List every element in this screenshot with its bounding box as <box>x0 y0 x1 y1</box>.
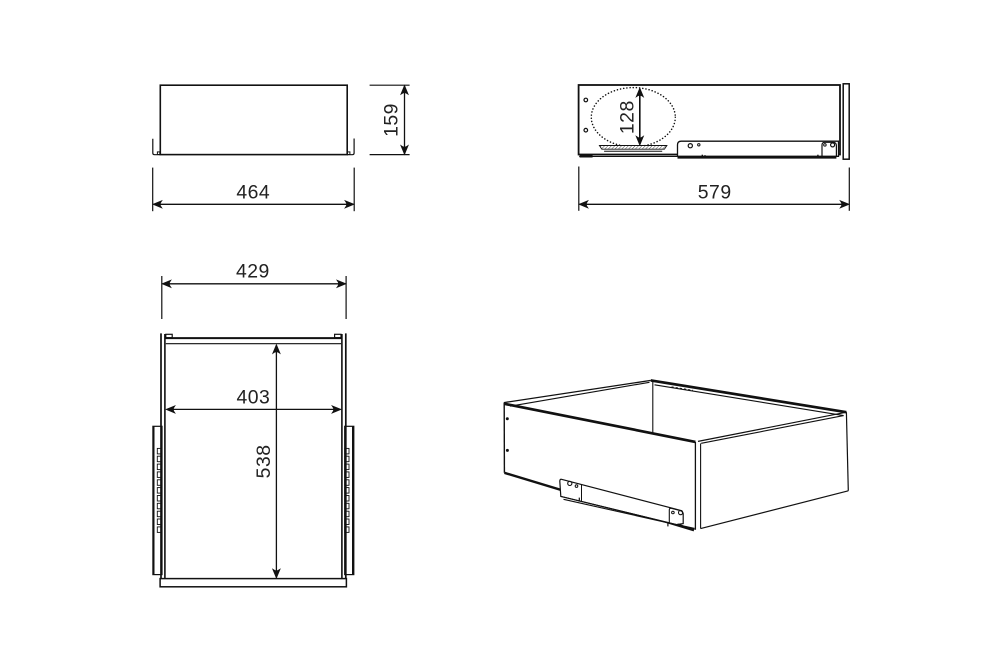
svg-text:128: 128 <box>617 100 639 134</box>
svg-text:159: 159 <box>381 103 403 137</box>
svg-text:538: 538 <box>253 444 275 478</box>
svg-text:403: 403 <box>236 387 270 409</box>
svg-text:429: 429 <box>236 260 270 282</box>
svg-text:464: 464 <box>236 181 270 203</box>
svg-text:579: 579 <box>698 181 732 203</box>
